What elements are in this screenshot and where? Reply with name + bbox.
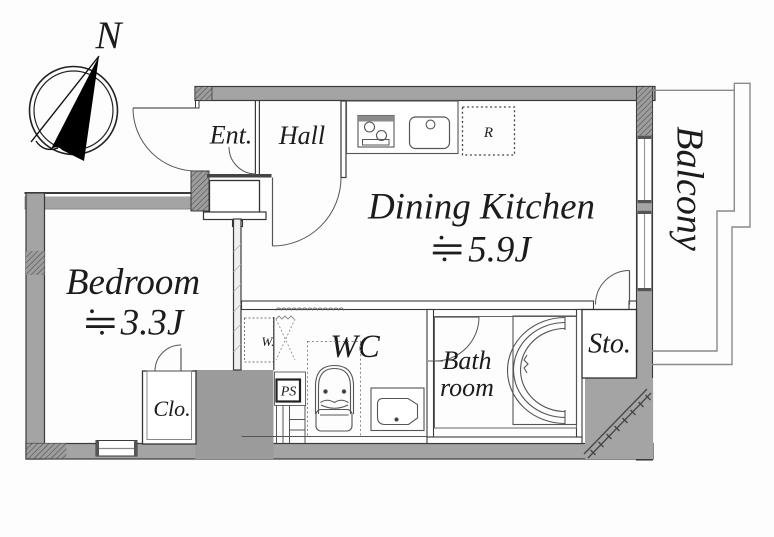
svg-text:WC: WC: [330, 329, 380, 365]
svg-text:Ent.: Ent.: [209, 121, 253, 150]
svg-text:Balcony: Balcony: [669, 126, 711, 251]
svg-text:Hall: Hall: [278, 121, 325, 150]
svg-text:Clo.: Clo.: [153, 396, 190, 421]
svg-text:W.: W.: [262, 334, 275, 349]
svg-text:Bath: Bath: [442, 346, 491, 375]
svg-text:room: room: [440, 373, 494, 402]
svg-text:PS: PS: [280, 385, 297, 400]
svg-text:R: R: [483, 125, 493, 141]
svg-text:3.3J: 3.3J: [120, 303, 185, 344]
svg-text:5.9J: 5.9J: [468, 230, 532, 271]
svg-text:Sto.: Sto.: [588, 329, 631, 360]
svg-text:Bedroom: Bedroom: [66, 262, 200, 303]
svg-text:N: N: [94, 14, 123, 57]
svg-text:Dining Kitchen: Dining Kitchen: [367, 187, 595, 228]
